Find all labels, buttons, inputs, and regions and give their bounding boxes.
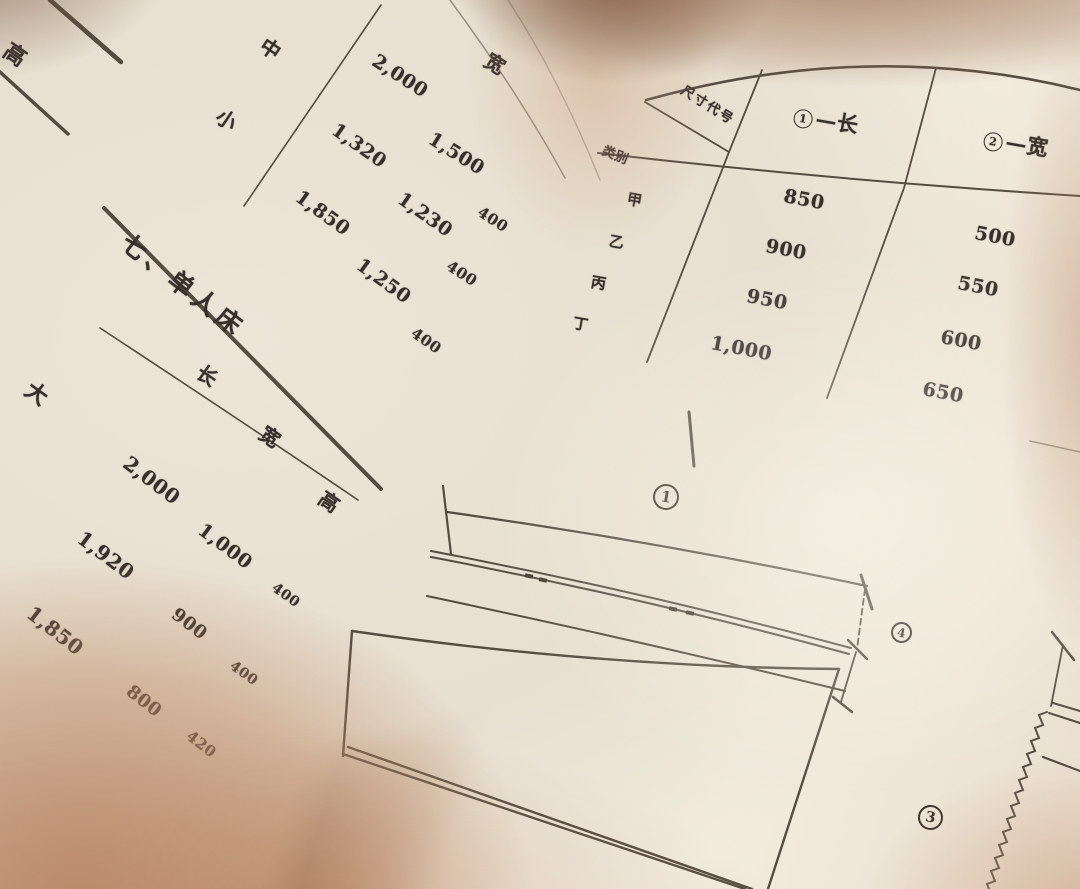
panel-bottom-edge-b — [348, 747, 752, 889]
circled-1-icon: 1 — [792, 108, 814, 130]
circled-3-icon: 3 — [916, 803, 945, 832]
detail-line-a — [1049, 713, 1080, 723]
figure-label-1: 1 — [651, 482, 681, 512]
table-header-rule — [598, 153, 1080, 196]
row-label: 丙 — [589, 271, 608, 294]
circled-2-icon: 2 — [982, 131, 1004, 153]
detail-dim-line — [1051, 645, 1063, 706]
table-stub-line — [1030, 441, 1080, 452]
row-label: 乙 — [607, 230, 626, 253]
left-rule-2 — [0, 72, 68, 134]
left-top-rule — [50, 0, 121, 62]
book-photo: 高 中 小 宽 2,000 1,500 1,320 1,230 1,850 1,… — [0, 0, 1080, 889]
stray-mark — [689, 412, 694, 466]
fig-rail-line-c — [427, 596, 845, 691]
fig-top-line — [447, 512, 867, 586]
fig-rail-line-b — [431, 557, 849, 654]
fig-dashdot — [857, 589, 865, 649]
circled-4-icon: 4 — [889, 620, 913, 644]
fig-left-tick — [443, 486, 451, 554]
figure-label-4: 4 — [889, 620, 913, 644]
printed-lines-and-figure — [0, 0, 1080, 889]
detail-castellated-break-line — [987, 712, 1047, 889]
detail-line-c — [1043, 757, 1080, 771]
panel-right-edge — [768, 669, 839, 889]
panel-top-edge — [352, 631, 839, 669]
detail-line-b — [1053, 703, 1080, 711]
page-edge-curve-2 — [508, 0, 600, 180]
row-label: 甲 — [625, 188, 644, 211]
circled-1-icon: 1 — [651, 482, 681, 512]
left-column-divider — [244, 5, 381, 206]
figure-label-3: 3 — [916, 803, 945, 832]
fig-dim-line-2 — [841, 652, 856, 702]
fig-rail-line-a — [431, 551, 851, 648]
panel-left-edge — [343, 631, 352, 756]
panel-bottom-edge-a — [343, 754, 745, 889]
row-label: 丁 — [571, 312, 590, 335]
